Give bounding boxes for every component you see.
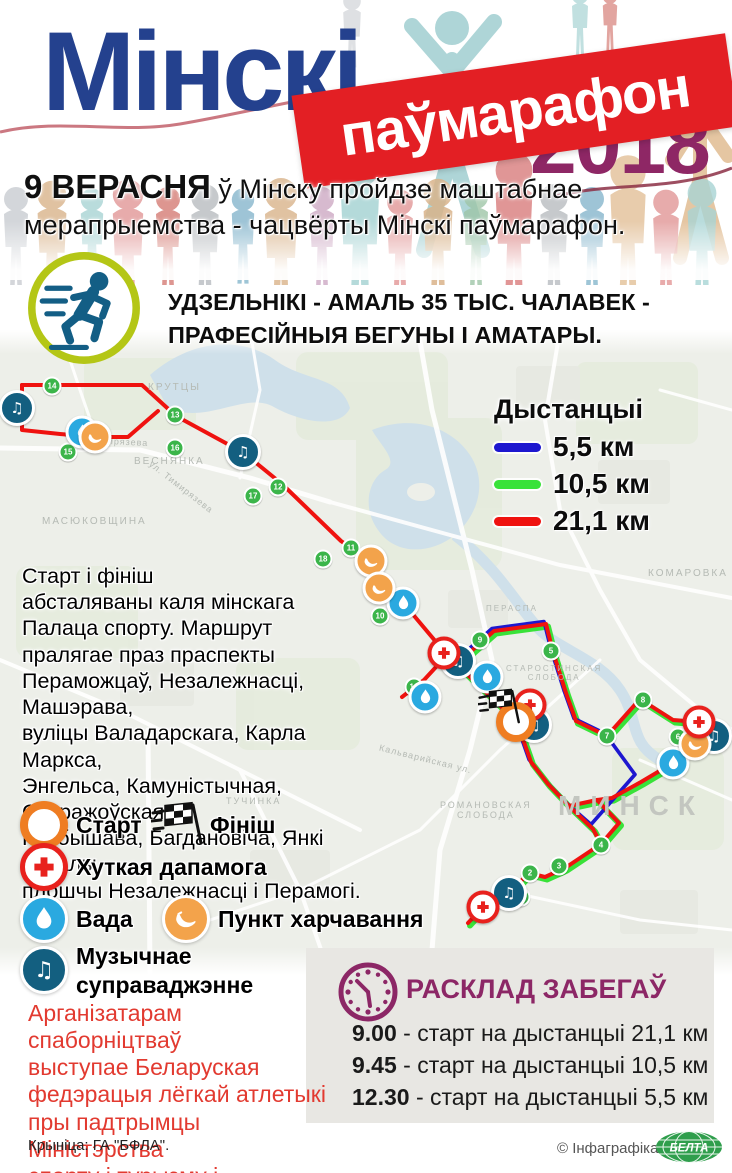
km-marker-3: 3 [550, 857, 569, 876]
finish-icon [151, 799, 205, 845]
finish-label: Фініш [210, 811, 275, 840]
water-icon [20, 895, 68, 943]
route-5km-swatch [494, 443, 541, 452]
map-label-starostinskaya: СТАРОСТИНСКАЯ СЛОБОДА [506, 664, 602, 682]
belta-logo: БЕЛТА [653, 1128, 725, 1166]
km-marker-17: 17 [244, 487, 263, 506]
schedule-item-3: 12.30 - старт на дыстанцыі 5,5 км [352, 1084, 708, 1111]
runner-icon [26, 250, 142, 366]
clock-icon [332, 956, 404, 1028]
km-marker-13: 13 [166, 406, 185, 425]
distance-21km: 21,1 км [494, 506, 650, 536]
route-21km-swatch [494, 517, 541, 526]
medical-icon [683, 706, 716, 739]
distance-legend-title: Дыстанцыі [494, 394, 650, 425]
km-marker-4: 4 [592, 836, 611, 855]
food-icon [79, 421, 112, 454]
food-icon [162, 895, 210, 943]
medical-icon [428, 637, 461, 670]
distance-legend: Дыстанцыі 5,5 км 10,5 км 21,1 км [494, 394, 650, 536]
event-date: 9 ВЕРАСНЯ [24, 168, 211, 205]
map-label-masyukovshchina: МАСЮКОВЩИНА [42, 516, 147, 527]
map-label-romanovskaya: РОМАНОВСКАЯ СЛОБОДА [440, 800, 532, 820]
km-marker-16: 16 [166, 439, 185, 458]
km-marker-14: 14 [43, 377, 62, 396]
start-icon [20, 801, 68, 849]
water-icon [409, 681, 442, 714]
route-map: КРУТЦЫ ВЕСНЯНКА МАСЮКОВЩИНА КОМАРОВКА ТУ… [0, 330, 732, 975]
schedule-title: РАСКЛАД ЗАБЕГАЎ [406, 974, 666, 1005]
participants-text: УДЗЕЛЬНІКІ - АМАЛЬ 35 ТЫС. ЧАЛАВЕК - ПРА… [168, 286, 708, 353]
medical-label: Хуткая дапамога [76, 853, 267, 882]
finish-icon [478, 685, 522, 725]
infographic-page: Мінскі паўмарафон 2018 9 ВЕРАСНЯ ў Мінск… [0, 0, 732, 1173]
water-label: Вада [76, 905, 133, 934]
food-label: Пункт харчавання [218, 905, 423, 934]
km-marker-5: 5 [542, 642, 561, 661]
map-label-komarovka: КОМАРОВКА [648, 568, 728, 579]
map-label-vesnyanka: ВЕСНЯНКА [134, 456, 205, 467]
distance-10km: 10,5 км [494, 469, 650, 499]
intro-text: 9 ВЕРАСНЯ ў Мінску пройдзе маштабнае мер… [24, 166, 730, 242]
infographic-credit: © Інфаграфіка [557, 1140, 658, 1157]
km-marker-8: 8 [634, 691, 653, 710]
schedule-box: РАСКЛАД ЗАБЕГАЎ 9.00 - старт на дыстанцы… [306, 948, 714, 1123]
distance-5km: 5,5 км [494, 432, 650, 462]
music-icon: ♫ [225, 434, 261, 470]
km-marker-12: 12 [269, 478, 288, 497]
music-icon: ♫ [0, 390, 35, 426]
km-marker-2: 2 [521, 864, 540, 883]
map-label-krutsy: КРУТЦЫ [148, 382, 201, 393]
source-credit: Крыніца: ГА "БФЛА". [28, 1137, 169, 1154]
schedule-item-2: 9.45 - старт на дыстанцыі 10,5 км [352, 1052, 708, 1079]
belta-logo-text: БЕЛТА [670, 1143, 709, 1155]
schedule-item-1: 9.00 - старт на дыстанцыі 21,1 км [352, 1020, 708, 1047]
map-label-minsk: МИНСК [558, 790, 704, 822]
start-label: Старт [76, 811, 142, 840]
music-label: Музычнае суправаджэнне [76, 942, 253, 1001]
map-label-peraspa: ПЕРАСПА [486, 604, 538, 613]
medical-icon [467, 891, 500, 924]
km-marker-9: 9 [471, 631, 490, 650]
route-10km-swatch [494, 480, 541, 489]
medical-icon [20, 843, 68, 891]
km-marker-7: 7 [598, 727, 617, 746]
music-icon: ♫ [20, 946, 68, 994]
